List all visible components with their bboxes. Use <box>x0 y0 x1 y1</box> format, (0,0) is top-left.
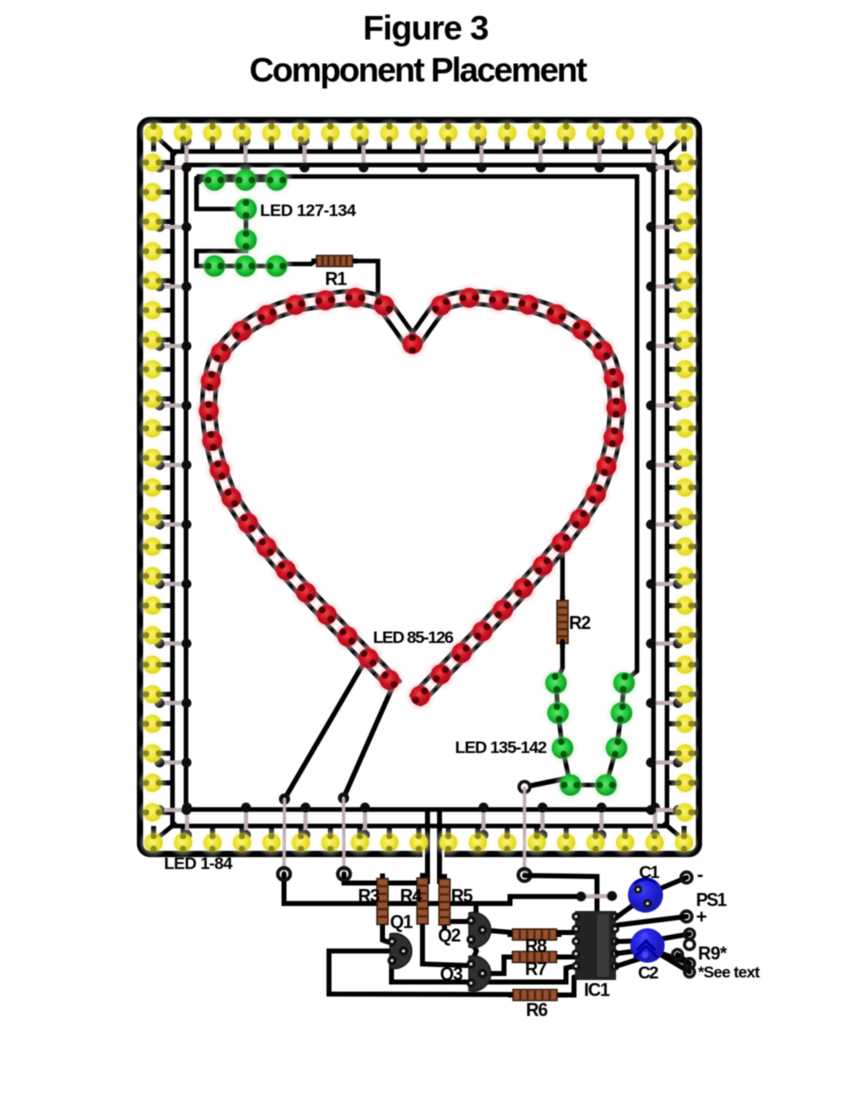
svg-text:R3: R3 <box>358 886 380 906</box>
svg-text:Q1: Q1 <box>390 912 413 932</box>
svg-text:-: - <box>697 865 703 886</box>
svg-text:LED 135-142: LED 135-142 <box>455 738 547 757</box>
svg-text:LED 85-126: LED 85-126 <box>373 628 453 647</box>
svg-text:*See text: *See text <box>698 965 761 982</box>
svg-text:LED 127-134: LED 127-134 <box>260 201 357 220</box>
svg-text:LED 1-84: LED 1-84 <box>164 854 233 873</box>
svg-text:+: + <box>696 907 707 928</box>
svg-text:R2: R2 <box>569 613 591 633</box>
svg-text:Q3: Q3 <box>440 964 463 984</box>
svg-text:C2: C2 <box>638 963 659 983</box>
svg-text:R9*: R9* <box>698 944 727 964</box>
svg-text:IC1: IC1 <box>584 980 610 1000</box>
svg-text:R4: R4 <box>400 886 422 906</box>
svg-text:Component Placement: Component Placement <box>249 52 587 90</box>
svg-text:Q2: Q2 <box>438 926 461 946</box>
svg-text:R5: R5 <box>451 886 473 906</box>
svg-text:R8: R8 <box>525 936 547 956</box>
svg-text:R6: R6 <box>526 1000 548 1020</box>
svg-text:Figure 3: Figure 3 <box>363 10 488 48</box>
svg-text:C1: C1 <box>639 862 660 882</box>
svg-text:R7: R7 <box>525 959 547 979</box>
